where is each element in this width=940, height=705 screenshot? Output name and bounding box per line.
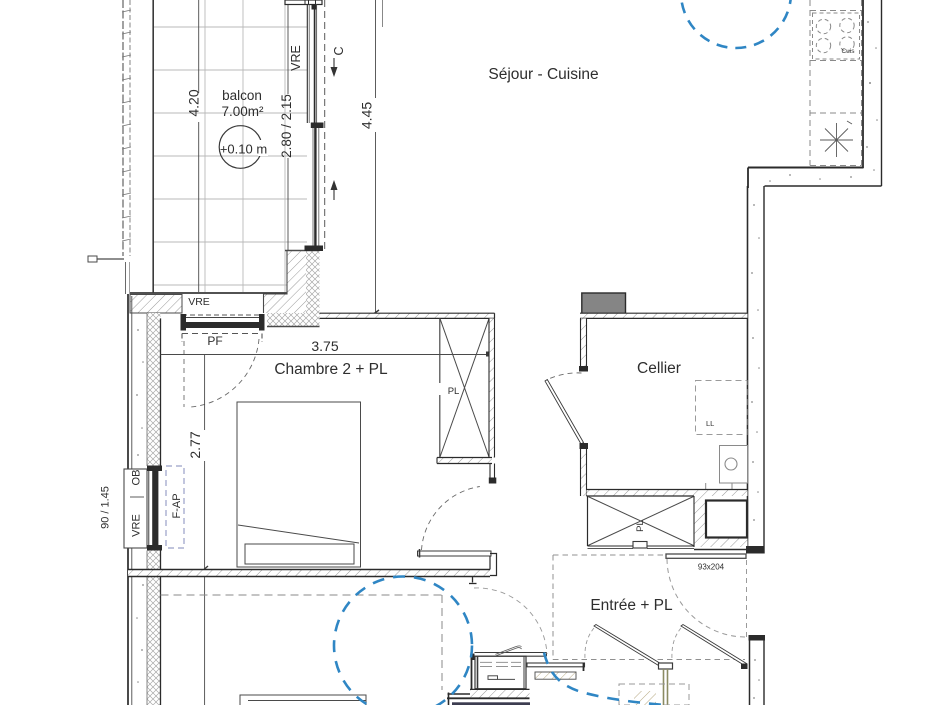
svg-text:Chambre 2 + PL: Chambre 2 + PL [274, 361, 388, 378]
svg-text:90 / 1.45: 90 / 1.45 [100, 486, 112, 529]
svg-text:Séjour - Cuisine: Séjour - Cuisine [488, 66, 598, 83]
svg-text:4.20: 4.20 [186, 89, 202, 116]
svg-text:PL: PL [635, 520, 646, 532]
svg-text:PL: PL [448, 386, 460, 397]
svg-text:3.75: 3.75 [311, 338, 338, 354]
svg-text:VRE: VRE [188, 296, 210, 308]
svg-text:PF: PF [207, 334, 222, 348]
svg-text:balcon: balcon [222, 88, 262, 103]
svg-text:C: C [332, 46, 346, 55]
svg-text:Entrée + PL: Entrée + PL [590, 597, 673, 614]
svg-text:OB: OB [131, 470, 143, 486]
svg-text:VRE: VRE [289, 45, 303, 71]
svg-text:2.77: 2.77 [187, 431, 203, 458]
svg-text:F-AP: F-AP [171, 493, 183, 518]
svg-text:93x204: 93x204 [698, 563, 725, 572]
svg-text:VRE: VRE [131, 514, 143, 537]
svg-text:4.45: 4.45 [359, 102, 375, 129]
svg-text:LL: LL [706, 419, 714, 428]
svg-text:7.00m²: 7.00m² [221, 104, 264, 119]
svg-text:Cuis: Cuis [841, 48, 855, 55]
svg-text:Cellier: Cellier [637, 360, 681, 377]
svg-text:2.80 / 2.15: 2.80 / 2.15 [279, 94, 294, 158]
svg-text:+0.10 m: +0.10 m [220, 142, 267, 157]
